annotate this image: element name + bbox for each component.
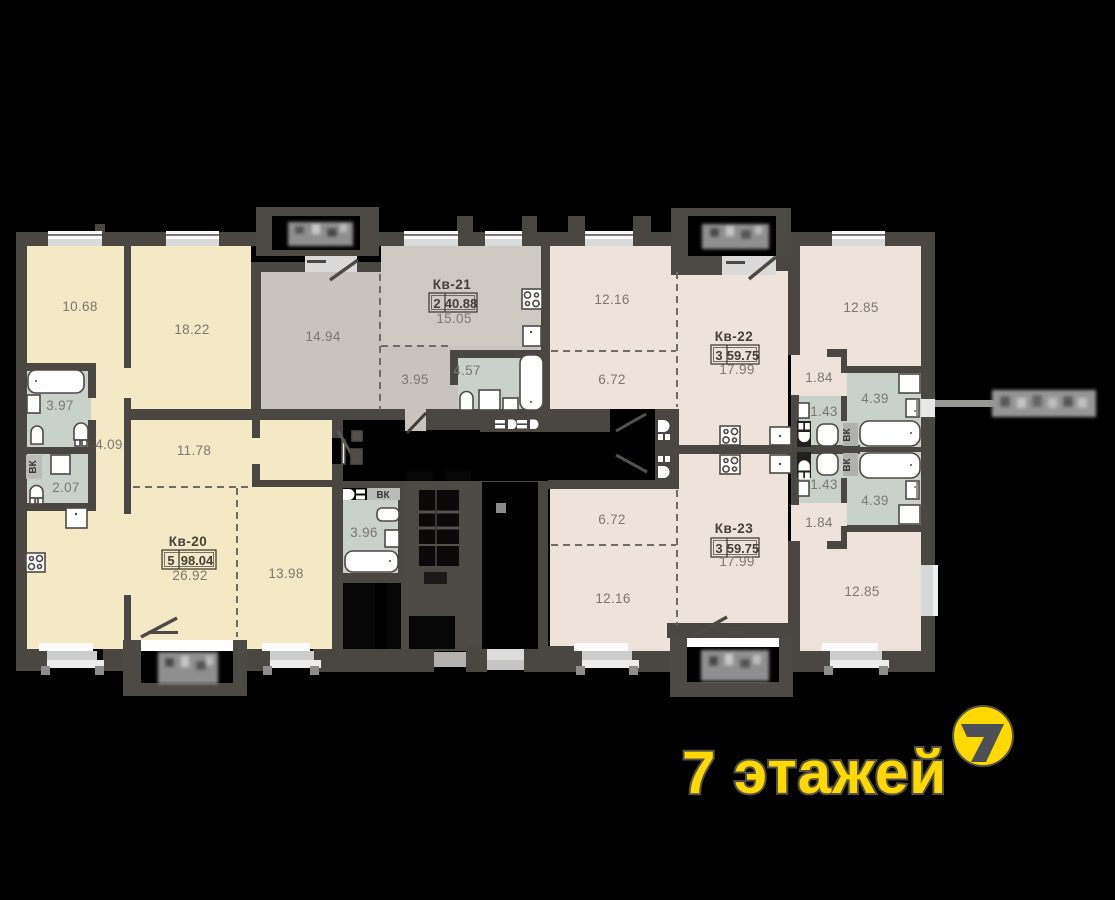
svg-text:Кв-23: Кв-23 <box>715 521 754 536</box>
svg-text:15.05: 15.05 <box>436 311 471 326</box>
svg-text:6.72: 6.72 <box>598 512 625 527</box>
svg-text:1.43: 1.43 <box>810 404 837 419</box>
svg-text:17.99: 17.99 <box>719 362 754 377</box>
svg-text:5: 5 <box>167 553 174 568</box>
svg-text:13.98: 13.98 <box>268 566 303 581</box>
svg-text:4.57: 4.57 <box>453 363 480 378</box>
svg-text:3.96: 3.96 <box>350 525 377 540</box>
svg-text:10.68: 10.68 <box>62 299 97 314</box>
svg-text:2: 2 <box>433 296 440 311</box>
svg-text:4.39: 4.39 <box>861 493 888 508</box>
svg-text:3: 3 <box>715 348 722 363</box>
svg-text:4.39: 4.39 <box>861 391 888 406</box>
svg-text:12.16: 12.16 <box>595 591 630 606</box>
svg-text:98.04: 98.04 <box>181 553 214 568</box>
svg-text:26.92: 26.92 <box>172 568 207 583</box>
svg-text:59.75: 59.75 <box>727 348 760 363</box>
svg-text:ВК: ВК <box>376 490 390 501</box>
svg-text:2.07: 2.07 <box>52 480 79 495</box>
svg-text:ВК: ВК <box>842 457 853 471</box>
svg-text:6.72: 6.72 <box>598 372 625 387</box>
svg-text:1.43: 1.43 <box>810 477 837 492</box>
svg-text:11.78: 11.78 <box>177 443 211 458</box>
svg-text:3.97: 3.97 <box>46 398 73 413</box>
svg-text:Кв-22: Кв-22 <box>715 329 754 344</box>
svg-text:40.88: 40.88 <box>445 296 478 311</box>
svg-text:4.09: 4.09 <box>95 437 122 452</box>
svg-text:ВК: ВК <box>28 459 39 473</box>
svg-text:14.94: 14.94 <box>305 329 340 344</box>
svg-text:12.85: 12.85 <box>844 584 879 599</box>
svg-text:Кв-21: Кв-21 <box>433 277 472 292</box>
svg-text:17.99: 17.99 <box>719 554 754 569</box>
svg-text:1.84: 1.84 <box>805 515 833 530</box>
svg-text:1.84: 1.84 <box>805 370 833 385</box>
svg-text:3.95: 3.95 <box>401 372 428 387</box>
svg-text:ВК: ВК <box>842 427 853 441</box>
svg-text:18.22: 18.22 <box>174 322 209 337</box>
svg-text:12.16: 12.16 <box>594 292 629 307</box>
svg-text:12.85: 12.85 <box>843 300 878 315</box>
svg-text:7 этажей: 7 этажей <box>682 739 947 806</box>
svg-text:Кв-20: Кв-20 <box>169 534 208 549</box>
